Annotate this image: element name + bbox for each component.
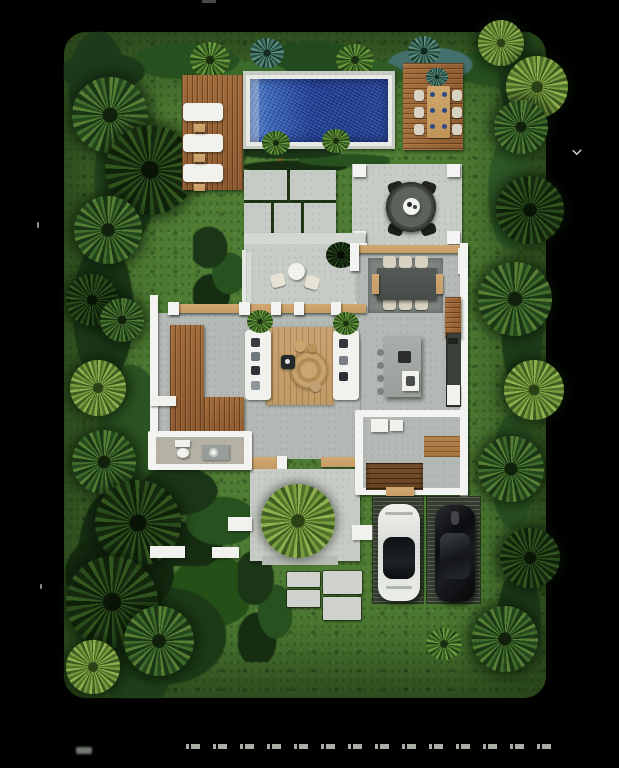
- paver-slab: [304, 203, 336, 233]
- palm-tree: [496, 176, 564, 244]
- checkmark-artifact: [572, 146, 581, 155]
- pouf: [294, 340, 306, 352]
- garden-bench: [228, 517, 252, 531]
- poolside-plant: [322, 129, 350, 153]
- wall-post: [271, 302, 281, 315]
- shrub: [426, 628, 462, 660]
- sofa-pillow: [339, 372, 348, 381]
- dining-table: [377, 268, 437, 300]
- outdoor-dining-chair: [452, 124, 462, 135]
- paver-slab: [274, 203, 301, 233]
- bathroom-floor: [156, 437, 244, 464]
- exterior-wall-left: [150, 295, 158, 437]
- palm-tree: [66, 640, 120, 694]
- patio-column: [447, 164, 460, 177]
- kitchen-stool: [377, 388, 384, 395]
- place-setting: [442, 124, 447, 129]
- wall-post: [350, 243, 359, 271]
- deck-side-table: [194, 154, 205, 162]
- wall-post: [168, 302, 179, 315]
- place-setting: [442, 92, 447, 97]
- place-setting: [430, 108, 435, 113]
- car-black: [435, 505, 475, 602]
- palm-tree: [494, 100, 548, 154]
- sink-basin: [406, 376, 415, 386]
- patio-column: [353, 164, 366, 177]
- toilet-bowl: [177, 448, 189, 458]
- place-setting: [430, 124, 435, 129]
- car-gloss: [451, 511, 459, 525]
- paver-patio: [244, 170, 336, 233]
- lintel-beam: [352, 245, 464, 253]
- round-palm-shrub: [261, 484, 335, 558]
- coffee-table-dish: [285, 359, 290, 364]
- terrace-side-step: [247, 252, 251, 302]
- shrub: [190, 42, 230, 78]
- stepping-stone: [323, 571, 362, 594]
- palm-tree: [478, 20, 524, 66]
- oven: [447, 385, 460, 405]
- potted-plant: [426, 68, 448, 86]
- edge-speck: [202, 0, 216, 3]
- palm-tree: [100, 298, 144, 342]
- shrub: [408, 36, 440, 66]
- palm-tree: [70, 360, 126, 416]
- sofa-pillow: [251, 338, 260, 347]
- garden-hedge: [238, 550, 292, 662]
- staircase: [366, 463, 423, 490]
- edge-speck: [40, 584, 42, 589]
- garden-slab: [150, 546, 185, 558]
- stepping-stone: [287, 590, 320, 607]
- cooktop: [398, 351, 411, 363]
- toilet-tank: [175, 440, 190, 447]
- dining-chair: [383, 256, 396, 268]
- outdoor-dining-chair: [414, 107, 424, 118]
- terrace-side-step: [242, 250, 246, 304]
- garden-bench: [150, 396, 176, 406]
- palm-tree: [478, 262, 552, 336]
- paver-slab: [290, 170, 336, 200]
- palm-tree: [124, 606, 194, 676]
- dining-chair: [399, 256, 412, 268]
- poolside-plant: [262, 131, 290, 155]
- pouf: [310, 381, 321, 392]
- place-setting: [430, 92, 435, 97]
- rendered-site-plan: [0, 0, 619, 768]
- outdoor-dining-chair: [414, 124, 424, 135]
- kitchen-stool: [377, 349, 384, 356]
- timber-door: [249, 457, 278, 469]
- fine-print-row: [186, 744, 554, 749]
- kitchen-cabinet: [445, 297, 461, 338]
- pouf: [307, 343, 317, 353]
- palm-tree: [478, 436, 544, 502]
- indoor-palm-plant: [247, 310, 273, 333]
- kitchen-stool: [377, 362, 384, 369]
- wall-post: [294, 302, 304, 315]
- vanity-sink: [209, 448, 218, 457]
- car-glass: [440, 533, 470, 579]
- wall-post: [239, 302, 250, 315]
- car-cabin: [383, 537, 415, 579]
- sun-lounger: [183, 164, 223, 182]
- table-end-bench: [436, 274, 443, 294]
- stair-landing: [424, 436, 460, 457]
- watermark-mark: [76, 747, 92, 754]
- stepping-stone: [323, 597, 361, 620]
- edge-speck: [37, 222, 39, 228]
- paver-slab: [244, 203, 271, 233]
- jute-rug: [290, 351, 328, 389]
- dining-chair: [415, 256, 428, 268]
- pool-steps: [250, 79, 259, 142]
- side-timber-deck: [204, 397, 244, 435]
- palm-tree: [504, 360, 564, 420]
- patio-column: [447, 231, 460, 244]
- garden-slab: [212, 547, 239, 558]
- table-tray: [403, 198, 420, 215]
- sofa-pillow: [339, 339, 348, 348]
- sofa-pillow: [251, 366, 260, 375]
- sun-lounger: [183, 103, 223, 121]
- timber-door: [321, 457, 358, 467]
- deck-side-table: [194, 184, 205, 191]
- outdoor-dining-chair: [414, 90, 424, 101]
- car-white: [378, 504, 420, 601]
- table-end-bench: [372, 274, 379, 294]
- tray-dish: [407, 202, 412, 207]
- garden-bed-terrace: [193, 226, 245, 312]
- sun-lounger: [183, 134, 223, 152]
- palm-tree: [472, 606, 538, 672]
- palm-tree: [74, 196, 142, 264]
- side-timber-deck: [170, 325, 204, 435]
- counter-appliance: [448, 338, 458, 344]
- outdoor-dining-chair: [452, 90, 462, 101]
- stepping-stone: [287, 572, 320, 587]
- tray-dish: [413, 205, 417, 209]
- paver-slab: [244, 170, 287, 200]
- sofa-pillow: [339, 356, 348, 365]
- sofa-pillow: [251, 381, 260, 390]
- car-trunk-line: [386, 586, 412, 589]
- wall-post: [277, 456, 287, 469]
- kitchen-stool: [377, 375, 384, 382]
- indoor-palm-plant: [333, 312, 359, 335]
- bistro-table: [288, 263, 305, 280]
- storage-unit: [371, 419, 388, 432]
- entry-step: [386, 487, 414, 496]
- storage-unit: [390, 420, 403, 431]
- sofa-pillow: [251, 352, 260, 361]
- outdoor-dining-chair: [452, 107, 462, 118]
- deck-side-table: [194, 124, 205, 132]
- place-setting: [442, 108, 447, 113]
- car-hood-line: [385, 512, 413, 515]
- shrub: [250, 38, 284, 68]
- palm-tree: [500, 528, 560, 588]
